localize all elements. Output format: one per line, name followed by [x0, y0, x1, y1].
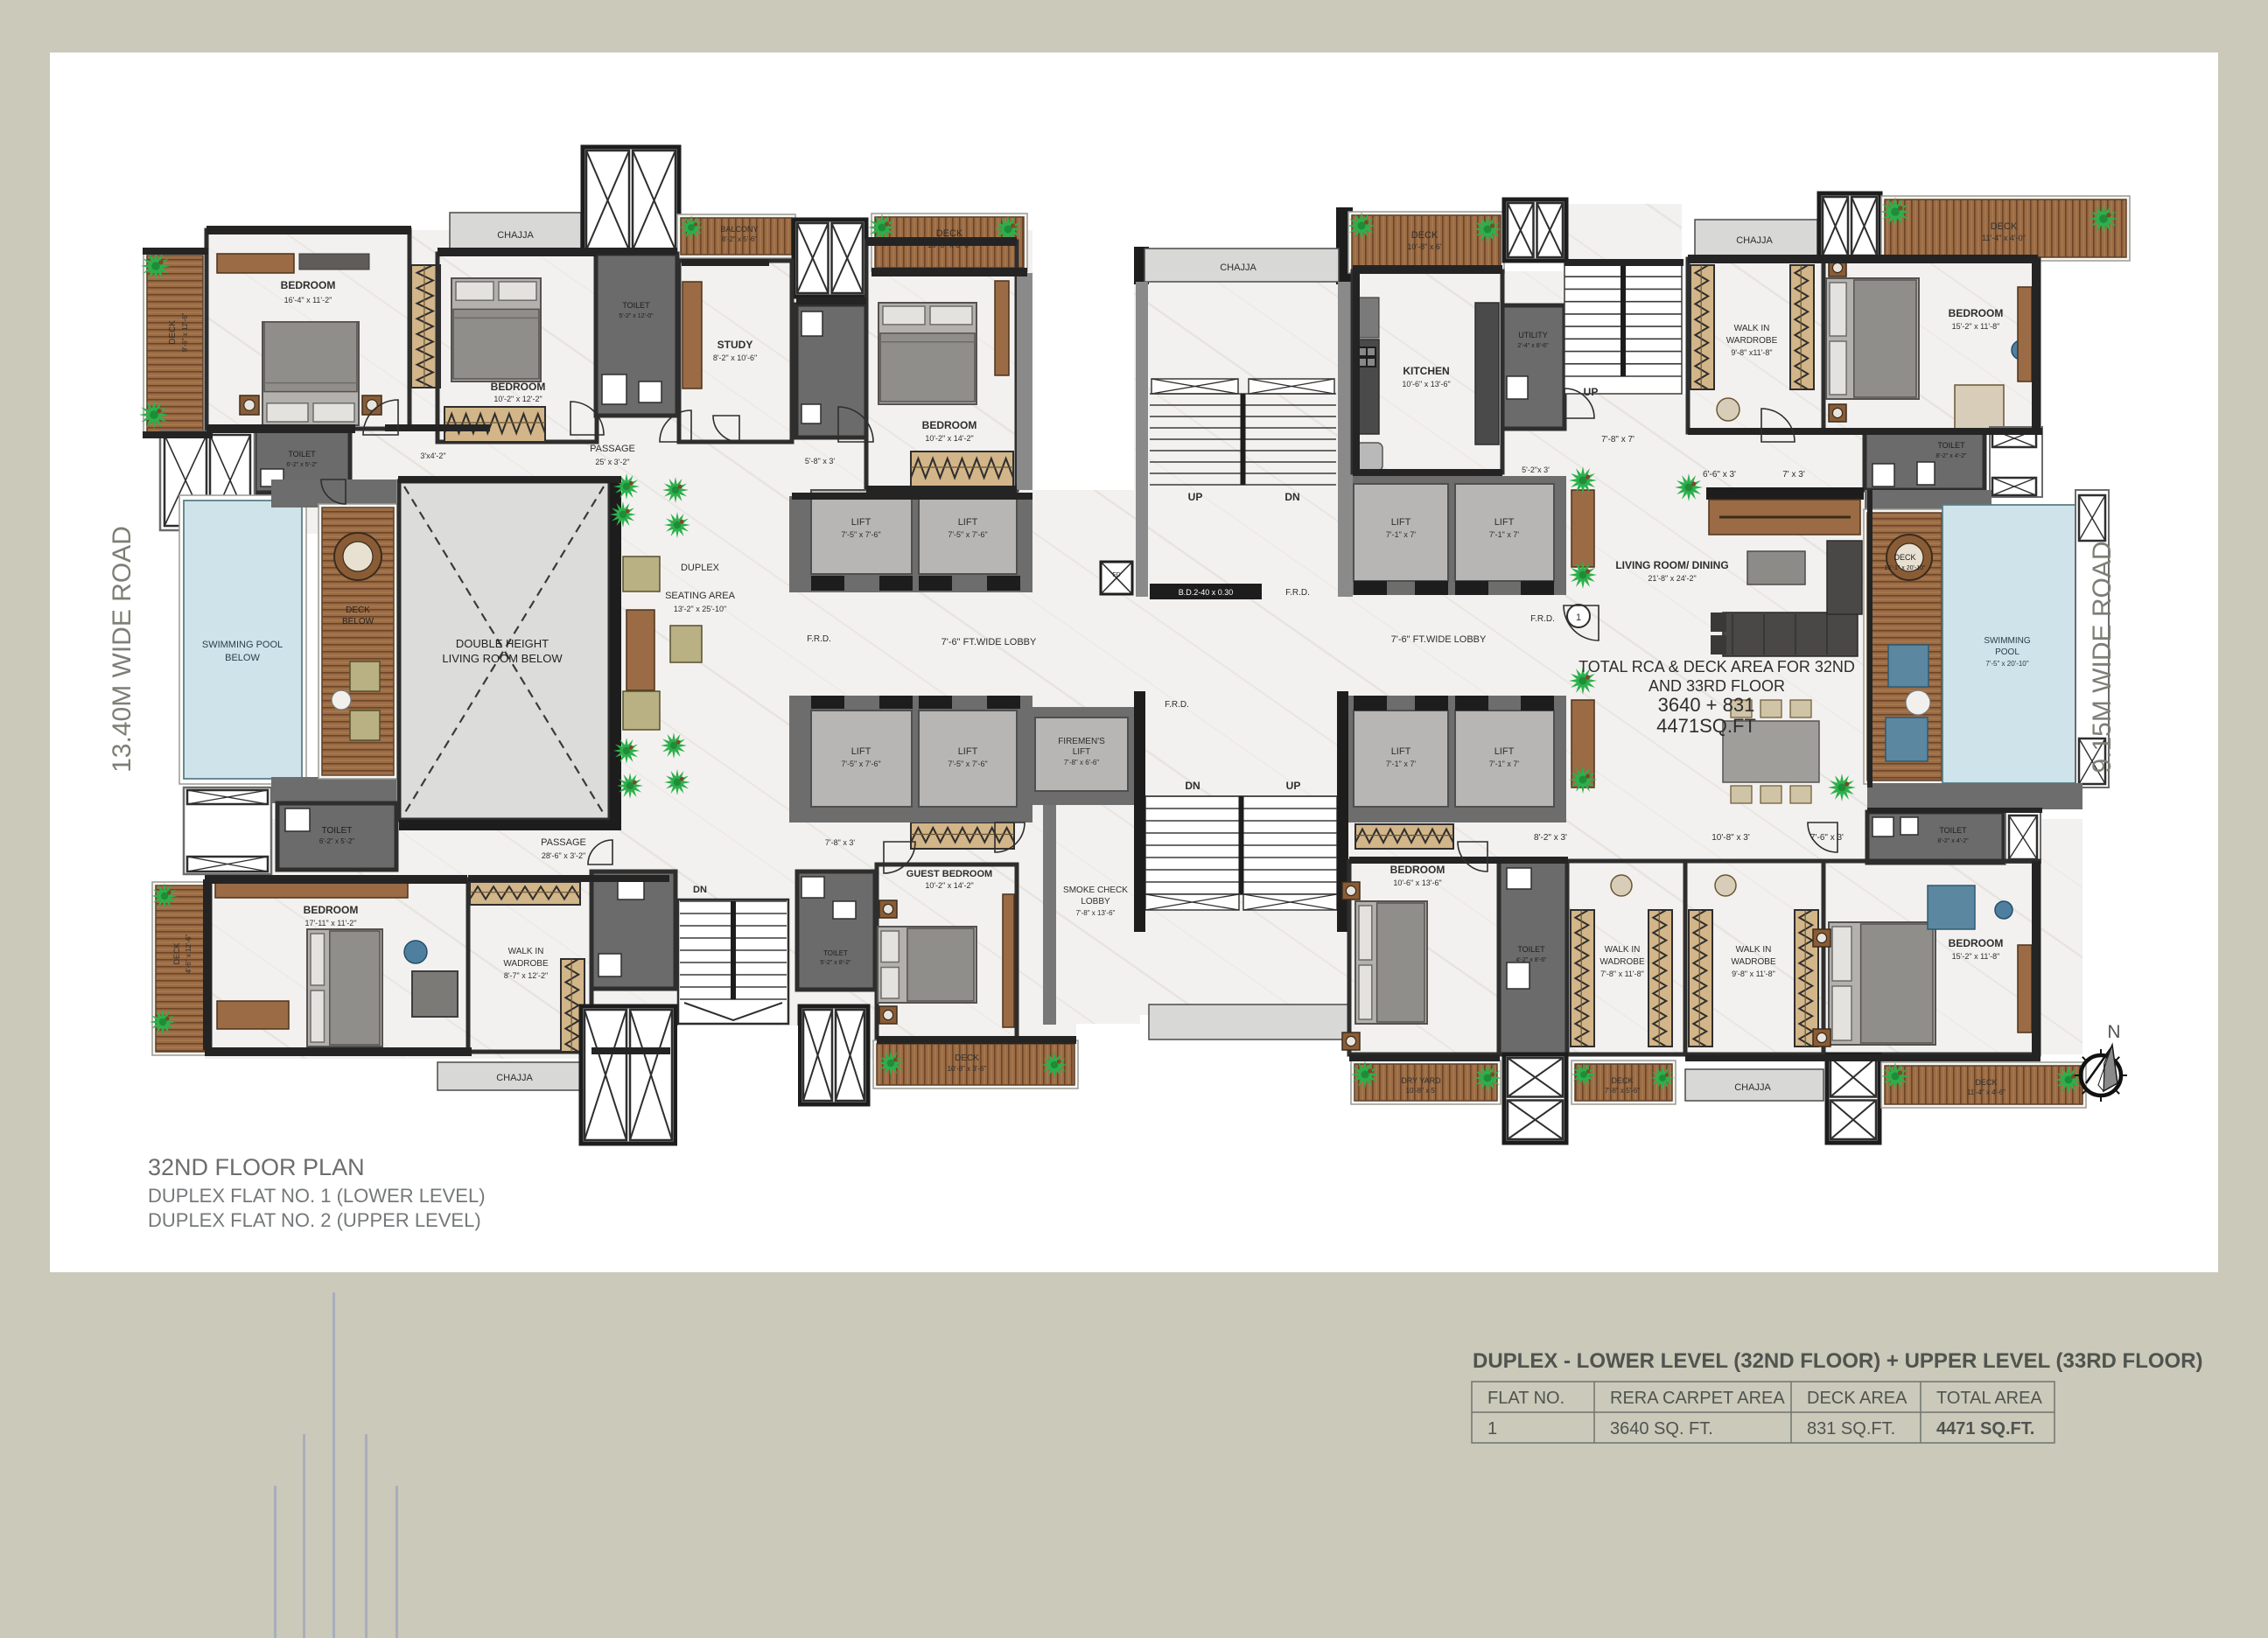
- svg-text:5'-2" x 12'-0": 5'-2" x 12'-0": [619, 313, 654, 319]
- svg-text:9'-8" x11'-8": 9'-8" x11'-8": [1731, 348, 1772, 357]
- svg-text:RERA CARPET AREA: RERA CARPET AREA: [1610, 1389, 1785, 1408]
- svg-text:BEDROOM: BEDROOM: [281, 279, 336, 291]
- svg-text:6'-6" x 3': 6'-6" x 3': [1703, 470, 1736, 479]
- svg-text:UP: UP: [1286, 780, 1301, 792]
- svg-text:AND 33RD FLOOR: AND 33RD FLOOR: [1648, 677, 1785, 695]
- svg-text:WALK IN: WALK IN: [1734, 324, 1770, 333]
- svg-text:TOILET: TOILET: [1939, 826, 1967, 835]
- svg-text:DN: DN: [693, 885, 707, 895]
- svg-text:1: 1: [1576, 612, 1581, 623]
- svg-text:PASSAGE: PASSAGE: [541, 837, 586, 848]
- svg-text:7'-5" x 7'-6": 7'-5" x 7'-6": [841, 530, 880, 539]
- svg-text:LIVING ROOM/ DINING: LIVING ROOM/ DINING: [1615, 559, 1728, 571]
- svg-text:10'-2" x 14'-2": 10'-2" x 14'-2": [925, 881, 973, 890]
- svg-text:DECK: DECK: [1991, 221, 2018, 232]
- svg-text:DECK: DECK: [168, 320, 178, 345]
- svg-text:5'-2"x 3': 5'-2"x 3': [1522, 465, 1550, 474]
- svg-text:10'-8" x 6': 10'-8" x 6': [1407, 242, 1441, 251]
- svg-text:PASSAGE: PASSAGE: [590, 444, 635, 454]
- svg-text:25' x 3'-2": 25' x 3'-2": [595, 458, 629, 466]
- svg-text:8'-2" x 4'-2": 8'-2" x 4'-2": [1937, 838, 1969, 844]
- svg-text:4471 SQ.FT.: 4471 SQ.FT.: [1936, 1419, 2034, 1438]
- svg-text:7'-1" x 7': 7'-1" x 7': [1489, 759, 1519, 768]
- svg-text:10'-6" x 13'-6": 10'-6" x 13'-6": [1402, 380, 1450, 388]
- svg-text:SEATING AREA: SEATING AREA: [665, 591, 736, 601]
- svg-text:6'-2" x 5'-2": 6'-2" x 5'-2": [286, 462, 318, 468]
- svg-text:7'-5" x 7'-6": 7'-5" x 7'-6": [948, 530, 987, 539]
- svg-text:WARDROBE: WARDROBE: [1726, 336, 1778, 346]
- svg-text:3640 SQ. FT.: 3640 SQ. FT.: [1610, 1419, 1713, 1438]
- svg-text:DUPLEX - LOWER LEVEL (32ND FLO: DUPLEX - LOWER LEVEL (32ND FLOOR) + UPPE…: [1473, 1349, 2203, 1373]
- svg-text:F.R.D.: F.R.D.: [1285, 588, 1310, 598]
- svg-text:11'-4" x 4'-6": 11'-4" x 4'-6": [1967, 1088, 2005, 1096]
- svg-text:DECK: DECK: [1411, 230, 1438, 241]
- svg-text:CHAJJA: CHAJJA: [497, 230, 534, 241]
- svg-text:DECK: DECK: [172, 942, 181, 964]
- svg-text:BEDROOM: BEDROOM: [491, 381, 546, 393]
- svg-text:WALK IN: WALK IN: [508, 947, 544, 956]
- svg-text:15'-2" x 11'-8": 15'-2" x 11'-8": [1952, 952, 2000, 961]
- svg-text:5'-2" x 8'-2": 5'-2" x 8'-2": [820, 960, 851, 966]
- svg-text:GUEST BEDROOM: GUEST BEDROOM: [906, 869, 992, 879]
- svg-text:9'-6" x 12'-6": 9'-6" x 12'-6": [181, 312, 189, 352]
- svg-text:7'-1" x 7': 7'-1" x 7': [1386, 759, 1416, 768]
- svg-text:WADROBE: WADROBE: [1731, 957, 1776, 967]
- svg-text:28'-6" x 3'-2": 28'-6" x 3'-2": [542, 851, 585, 860]
- svg-text:FD: FD: [1112, 572, 1120, 578]
- svg-text:BALCONY: BALCONY: [720, 225, 758, 234]
- svg-text:POOL: POOL: [1995, 647, 2019, 657]
- svg-text:BEDROOM: BEDROOM: [1949, 307, 2004, 319]
- svg-text:LIFT: LIFT: [958, 517, 978, 528]
- svg-text:TOTAL AREA: TOTAL AREA: [1936, 1389, 2042, 1408]
- svg-text:CHAJJA: CHAJJA: [1220, 262, 1256, 273]
- svg-text:7'-6" FT.WIDE LOBBY: 7'-6" FT.WIDE LOBBY: [941, 637, 1037, 647]
- svg-text:8'-2" x 3': 8'-2" x 3': [1534, 833, 1567, 843]
- svg-text:CHAJJA: CHAJJA: [1734, 1082, 1771, 1093]
- svg-text:LIFT: LIFT: [1494, 517, 1515, 528]
- svg-text:7'-6" x 3': 7'-6" x 3': [1810, 833, 1844, 843]
- svg-text:TOILET: TOILET: [1937, 441, 1965, 450]
- svg-text:4471SQ.FT: 4471SQ.FT: [1656, 715, 1756, 737]
- svg-text:10'-8" x 3'-6": 10'-8" x 3'-6": [948, 1065, 987, 1073]
- svg-text:TOILET: TOILET: [322, 826, 353, 836]
- svg-text:9.15M WIDE ROAD: 9.15M WIDE ROAD: [2088, 541, 2117, 773]
- svg-text:FLAT NO.: FLAT NO.: [1487, 1389, 1564, 1408]
- svg-text:DN: DN: [1284, 491, 1299, 503]
- svg-text:7'-1" x 7': 7'-1" x 7': [1489, 530, 1519, 539]
- svg-text:STUDY: STUDY: [717, 339, 753, 351]
- svg-text:1: 1: [1487, 1419, 1497, 1438]
- svg-text:DECK: DECK: [1893, 553, 1915, 562]
- svg-text:7'-8" x 13'-6": 7'-8" x 13'-6": [1076, 909, 1116, 917]
- svg-text:FIREMEN'S: FIREMEN'S: [1058, 737, 1105, 746]
- svg-text:LOBBY: LOBBY: [1081, 897, 1110, 906]
- svg-text:LIFT: LIFT: [958, 746, 978, 757]
- svg-text:TOILET: TOILET: [1517, 945, 1545, 954]
- svg-text:TOILET: TOILET: [823, 949, 848, 957]
- svg-text:WALK IN: WALK IN: [1605, 945, 1641, 955]
- svg-text:8'-2" x 5'-6": 8'-2" x 5'-6": [722, 235, 757, 243]
- svg-text:2'-4" x 8'-6": 2'-4" x 8'-6": [1517, 343, 1549, 349]
- svg-text:DECK AREA: DECK AREA: [1807, 1389, 1907, 1408]
- svg-text:15'-2" x 11'-8": 15'-2" x 11'-8": [1952, 322, 2000, 331]
- svg-text:8'-2" x 10'-6": 8'-2" x 10'-6": [713, 353, 757, 362]
- svg-text:10'-8" x 5': 10'-8" x 5': [1406, 1087, 1437, 1095]
- svg-text:WALK IN: WALK IN: [1736, 945, 1772, 955]
- svg-text:3640 + 831: 3640 + 831: [1658, 694, 1755, 716]
- svg-text:LIFT: LIFT: [851, 517, 871, 528]
- svg-text:831 SQ.FT.: 831 SQ.FT.: [1807, 1419, 1895, 1438]
- svg-text:SWIMMING POOL: SWIMMING POOL: [202, 640, 283, 650]
- svg-text:11'-4" x 4'-0": 11'-4" x 4'-0": [1982, 234, 2026, 242]
- svg-text:7' x 3': 7' x 3': [1782, 470, 1805, 479]
- svg-text:7'-8" x 3': 7'-8" x 3': [825, 838, 855, 847]
- svg-text:32ND FLOOR PLAN: 32ND FLOOR PLAN: [148, 1154, 365, 1180]
- svg-text:WADROBE: WADROBE: [503, 959, 549, 969]
- svg-text:TOILET: TOILET: [288, 450, 316, 458]
- svg-text:DUPLEX FLAT NO. 2 (UPPER LEVEL: DUPLEX FLAT NO. 2 (UPPER LEVEL): [148, 1209, 481, 1231]
- svg-text:21'-8" x 24'-2": 21'-8" x 24'-2": [1648, 574, 1696, 583]
- svg-text:TOTAL RCA & DECK AREA FOR 32ND: TOTAL RCA & DECK AREA FOR 32ND: [1578, 658, 1855, 675]
- svg-text:DUPLEX FLAT NO. 1 (LOWER LEVEL: DUPLEX FLAT NO. 1 (LOWER LEVEL): [148, 1185, 486, 1207]
- svg-text:BELOW: BELOW: [342, 617, 374, 626]
- svg-text:7'-8" x 11'-8": 7'-8" x 11'-8": [1600, 969, 1644, 978]
- svg-text:B.D.2-40 x 0.30: B.D.2-40 x 0.30: [1179, 588, 1234, 597]
- svg-text:LIFT: LIFT: [1391, 517, 1411, 528]
- svg-text:LIVING ROOM BELOW: LIVING ROOM BELOW: [442, 652, 563, 665]
- svg-text:15'-1" x 20'-10": 15'-1" x 20'-10": [1885, 565, 1926, 571]
- svg-text:BEDROOM: BEDROOM: [1390, 864, 1445, 876]
- svg-text:DECK: DECK: [1611, 1076, 1633, 1085]
- svg-text:7'-6" FT.WIDE LOBBY: 7'-6" FT.WIDE LOBBY: [1391, 634, 1487, 645]
- svg-text:DN: DN: [1185, 780, 1200, 792]
- svg-text:7'-5" x 7'-6": 7'-5" x 7'-6": [841, 759, 880, 768]
- svg-text:WADROBE: WADROBE: [1599, 957, 1645, 967]
- svg-text:DECK: DECK: [346, 605, 370, 615]
- svg-text:DUPLEX: DUPLEX: [681, 563, 720, 573]
- svg-text:13.40M WIDE ROAD: 13.40M WIDE ROAD: [108, 526, 136, 773]
- svg-text:BELOW: BELOW: [225, 653, 260, 663]
- svg-text:3'x4'-2": 3'x4'-2": [420, 451, 445, 460]
- svg-text:F.R.D.: F.R.D.: [807, 634, 831, 644]
- svg-text:TOILET: TOILET: [622, 301, 650, 310]
- svg-text:7'-8" x 6'-6": 7'-8" x 6'-6": [1064, 759, 1099, 766]
- svg-text:16'-4" x 11'-2": 16'-4" x 11'-2": [284, 296, 332, 304]
- svg-text:8'-2" x 4'-2": 8'-2" x 4'-2": [1935, 453, 1967, 459]
- svg-text:13'-2" x 25'-10": 13'-2" x 25'-10": [674, 605, 726, 613]
- svg-text:UP: UP: [1584, 386, 1599, 398]
- svg-text:LIFT: LIFT: [851, 746, 871, 757]
- svg-text:CHAJJA: CHAJJA: [496, 1073, 533, 1083]
- svg-text:BEDROOM: BEDROOM: [304, 904, 359, 916]
- svg-text:SWIMMING: SWIMMING: [1984, 636, 2031, 646]
- svg-text:6'-2" x 5'-2": 6'-2" x 5'-2": [319, 837, 354, 845]
- svg-text:F.R.D.: F.R.D.: [1530, 614, 1555, 624]
- svg-text:10'-6" x 13'-6": 10'-6" x 13'-6": [1393, 878, 1441, 887]
- svg-text:10'-8" x 3': 10'-8" x 3': [1711, 833, 1750, 843]
- svg-text:BEDROOM: BEDROOM: [922, 419, 977, 431]
- svg-text:17'-11" x 11'-2": 17'-11" x 11'-2": [304, 919, 356, 927]
- svg-text:SMOKE CHECK: SMOKE CHECK: [1063, 885, 1128, 895]
- svg-text:7'-5" x 20'-10": 7'-5" x 20'-10": [1985, 660, 2028, 668]
- svg-text:4'-6" x 12'-6": 4'-6" x 12'-6": [185, 934, 192, 973]
- svg-text:LIFT: LIFT: [1391, 746, 1411, 757]
- svg-text:7'-1" x 7': 7'-1" x 7': [1386, 530, 1416, 539]
- svg-text:N: N: [2107, 1022, 2120, 1042]
- svg-text:LIFT: LIFT: [1494, 746, 1515, 757]
- svg-text:CHAJJA: CHAJJA: [1736, 235, 1773, 246]
- svg-text:10'-2" x 12'-2": 10'-2" x 12'-2": [493, 395, 542, 403]
- svg-text:DECK: DECK: [1975, 1078, 1997, 1087]
- svg-text:BEDROOM: BEDROOM: [1949, 937, 2004, 949]
- svg-text:KITCHEN: KITCHEN: [1403, 365, 1449, 377]
- svg-text:7'-8" x 7': 7'-8" x 7': [1601, 435, 1634, 444]
- svg-text:F.R.D.: F.R.D.: [1165, 700, 1189, 710]
- svg-text:7'-5" x 7'-6": 7'-5" x 7'-6": [948, 759, 987, 768]
- svg-text:7'-8" x 5'-6": 7'-8" x 5'-6": [1605, 1087, 1640, 1095]
- svg-text:DECK: DECK: [955, 1053, 979, 1063]
- svg-text:DRY YARD: DRY YARD: [1401, 1076, 1441, 1085]
- svg-text:8'-7" x 12'-2": 8'-7" x 12'-2": [504, 971, 548, 980]
- svg-text:UP: UP: [1188, 491, 1203, 503]
- svg-text:5'-8" x 3': 5'-8" x 3': [805, 457, 835, 465]
- svg-text:9'-8" x 11'-8": 9'-8" x 11'-8": [1732, 969, 1775, 978]
- svg-text:DOUBLE HEIGHT: DOUBLE HEIGHT: [456, 637, 549, 650]
- svg-text:UTILITY: UTILITY: [1518, 331, 1548, 339]
- svg-text:LIFT: LIFT: [1073, 747, 1091, 757]
- svg-text:10'-2" x 14'-2": 10'-2" x 14'-2": [925, 434, 973, 443]
